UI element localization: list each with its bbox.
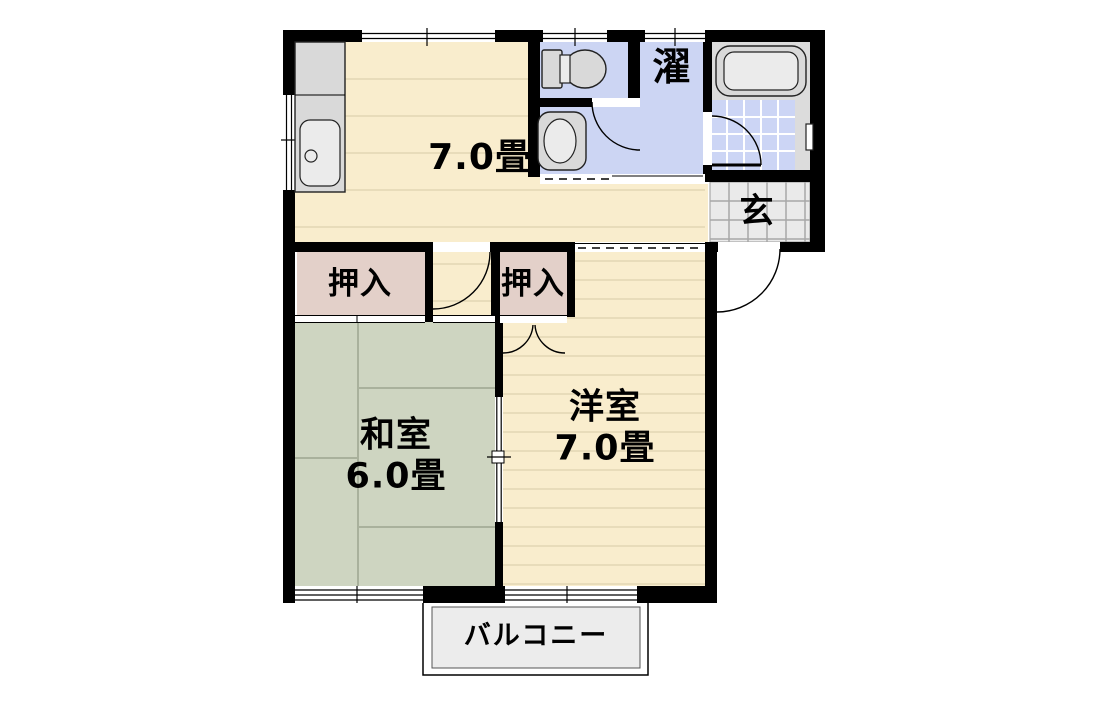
japanese-room-balcony-window <box>295 586 423 603</box>
bathroom-side-window <box>806 124 813 150</box>
western-room-label: 洋室 7.0畳 <box>554 387 655 468</box>
closet-left-sliding-doors <box>295 315 425 323</box>
laundry-kitchen-opening <box>540 174 705 184</box>
floor-plan: 7.0畳 濯 玄 押入 押入 和室 6.0畳 洋室 7.0畳 バルコニー <box>0 0 1104 707</box>
toilet <box>542 50 606 88</box>
floor-plan-drawing <box>0 0 1104 707</box>
closet-right-label: 押入 <box>501 267 565 303</box>
corridor-japanese-room-opening <box>433 315 495 323</box>
laundry-label: 濯 <box>652 45 691 89</box>
western-room-balcony-window <box>505 586 637 603</box>
genkan-label: 玄 <box>740 192 775 231</box>
western-room-size: 7.0畳 <box>554 428 655 469</box>
bathtub <box>716 46 806 96</box>
japanese-room-name: 和室 <box>345 415 446 456</box>
western-room-name: 洋室 <box>554 387 655 428</box>
western-room-top-opening <box>575 242 705 252</box>
ldk-size-label: 7.0畳 <box>428 137 532 179</box>
japanese-room-label: 和室 6.0畳 <box>345 415 446 496</box>
japanese-room-size: 6.0畳 <box>345 456 446 497</box>
closet-left-label: 押入 <box>328 267 392 303</box>
entrance-door <box>717 242 780 312</box>
corridor-floor <box>433 242 495 322</box>
balcony-label: バルコニー <box>464 620 608 651</box>
kitchen-sink <box>295 42 345 192</box>
hall-floor <box>540 184 708 242</box>
washbasin <box>538 112 586 170</box>
